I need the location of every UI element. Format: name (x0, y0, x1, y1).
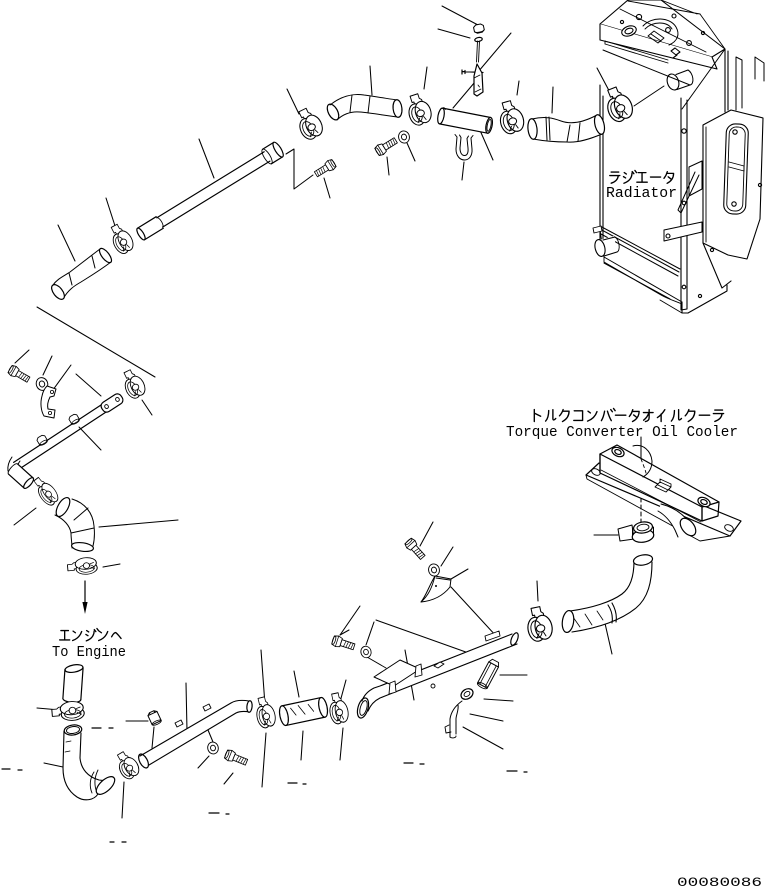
svg-text:00080086: 00080086 (677, 875, 762, 890)
svg-text:Radiator: Radiator (606, 185, 677, 202)
svg-text:To Engine: To Engine (52, 644, 126, 661)
svg-text:Torque Converter Oil Cooler: Torque Converter Oil Cooler (506, 424, 738, 441)
